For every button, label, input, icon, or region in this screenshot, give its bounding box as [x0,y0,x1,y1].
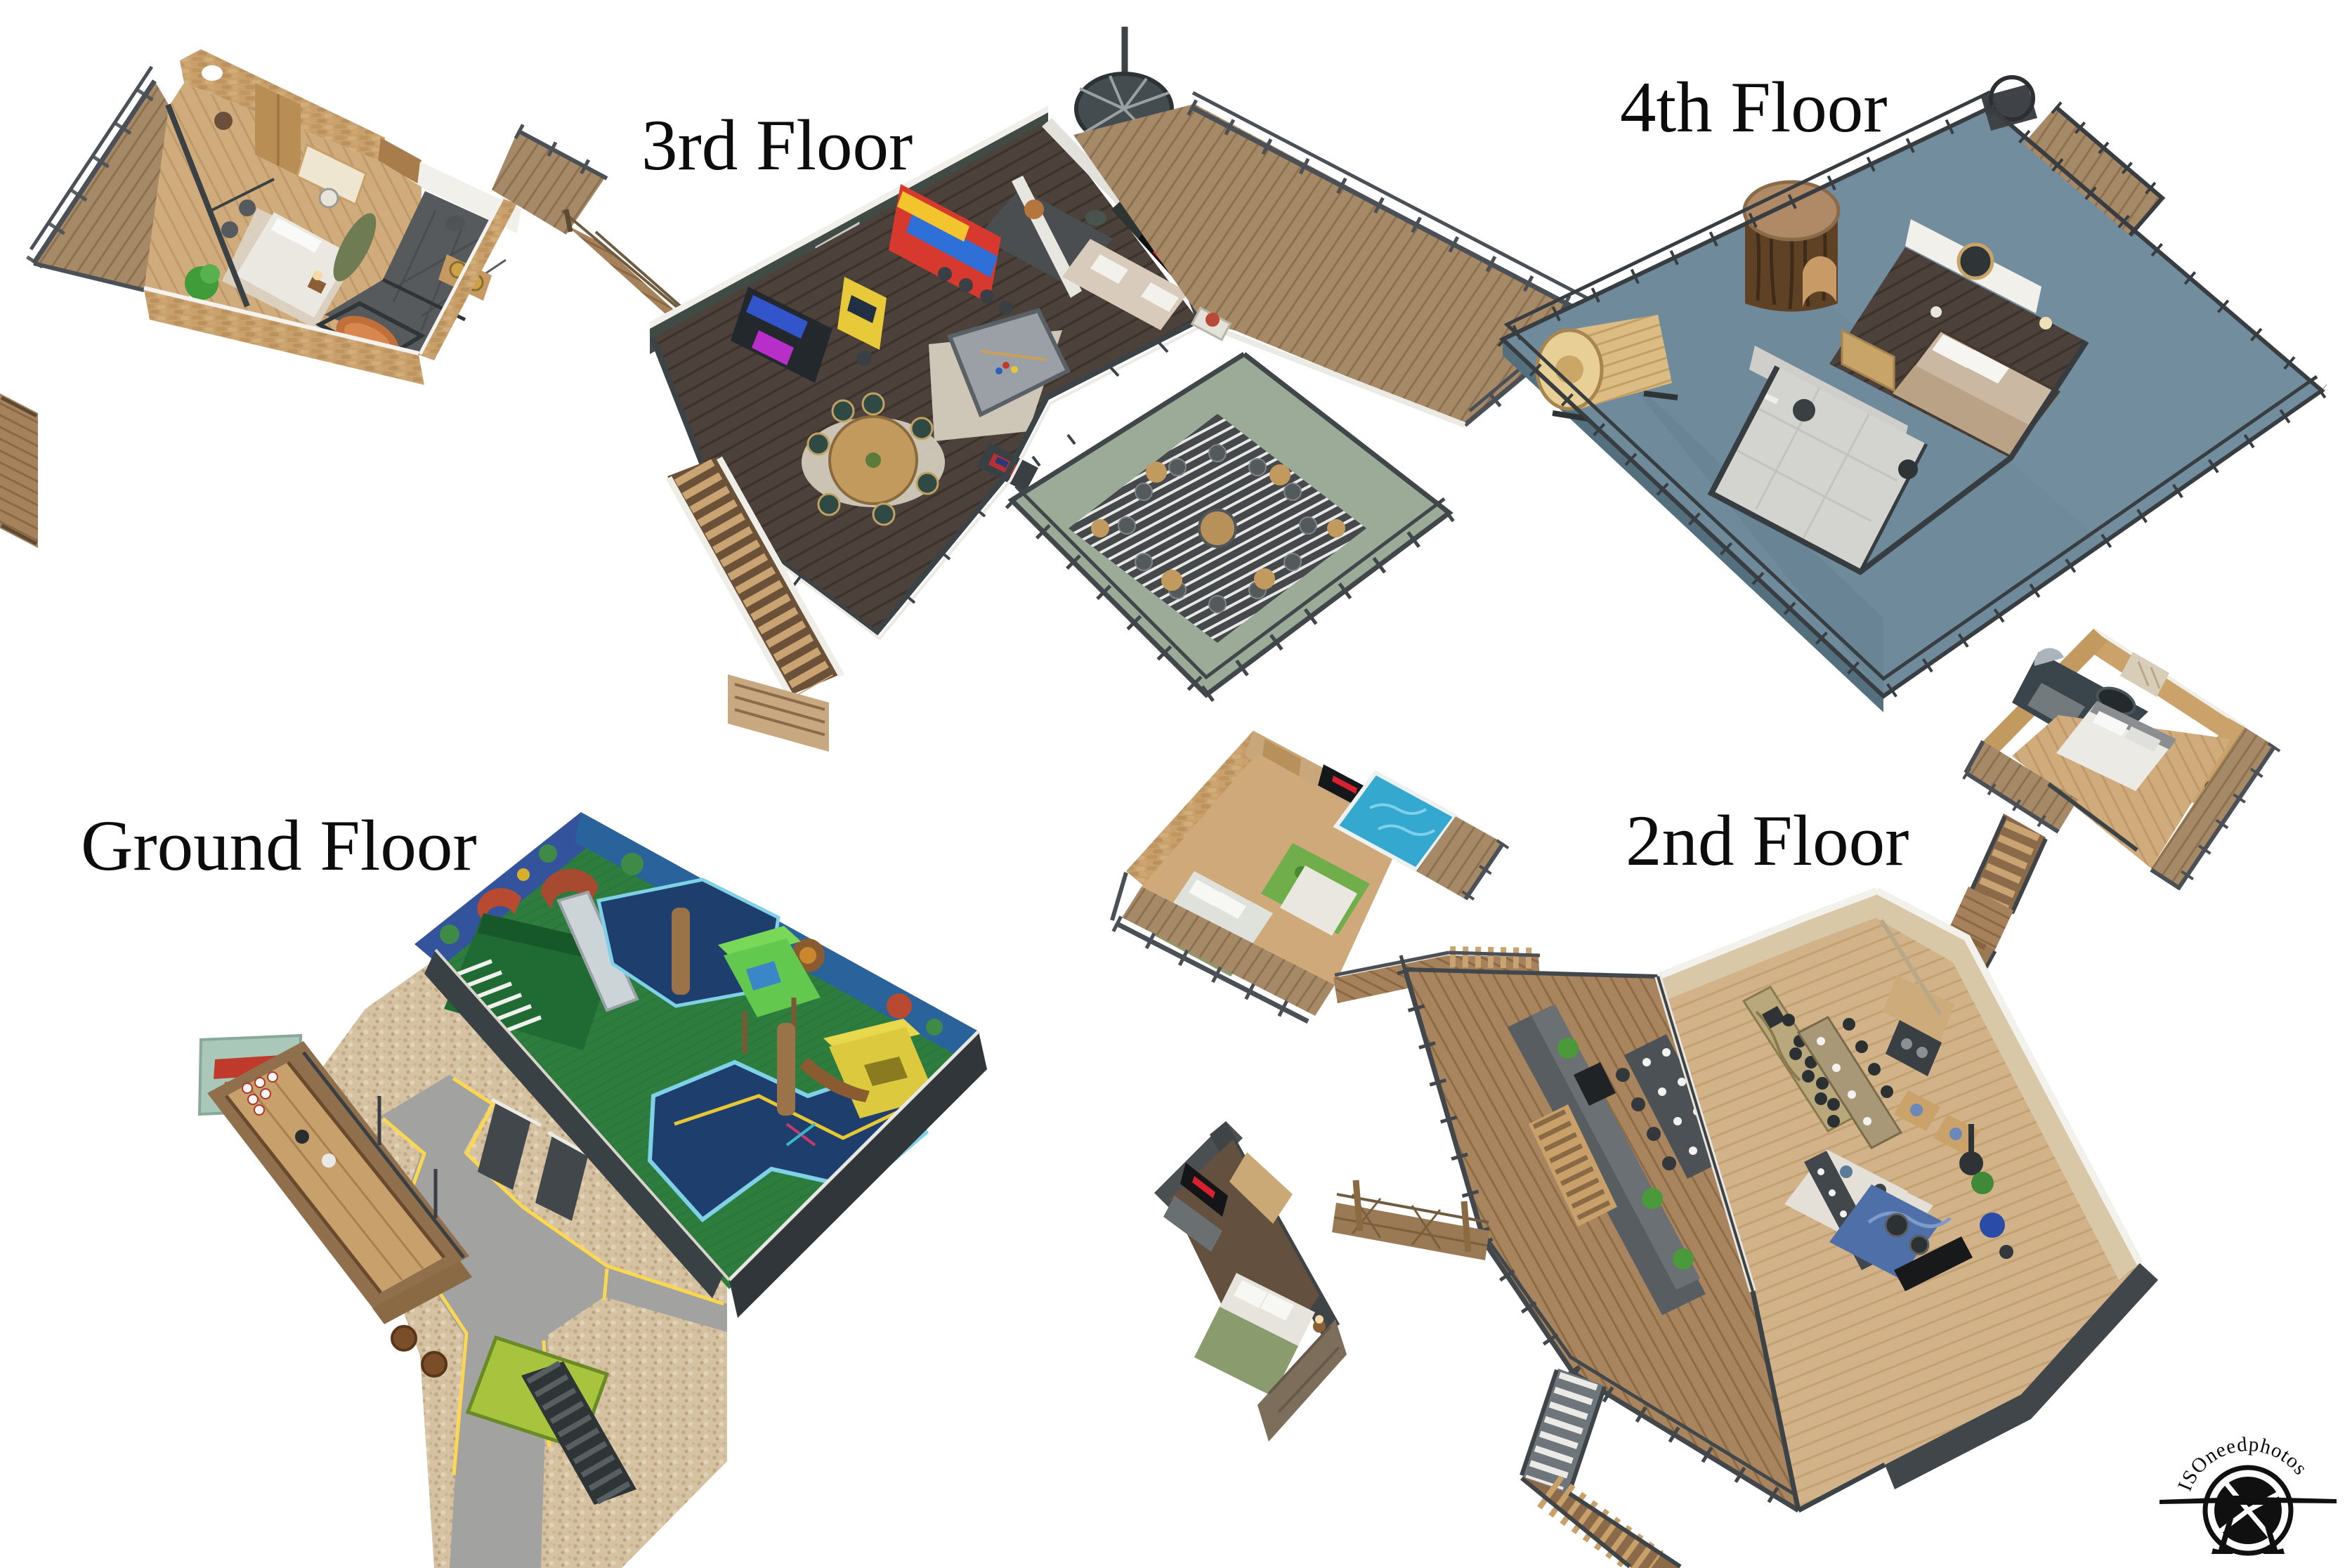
svg-text:Ground Floor: Ground Floor [81,806,477,886]
svg-text:2nd Floor: 2nd Floor [1626,801,1909,881]
svg-text:3rd Floor: 3rd Floor [641,105,913,185]
svg-text:4th Floor: 4th Floor [1620,67,1888,148]
